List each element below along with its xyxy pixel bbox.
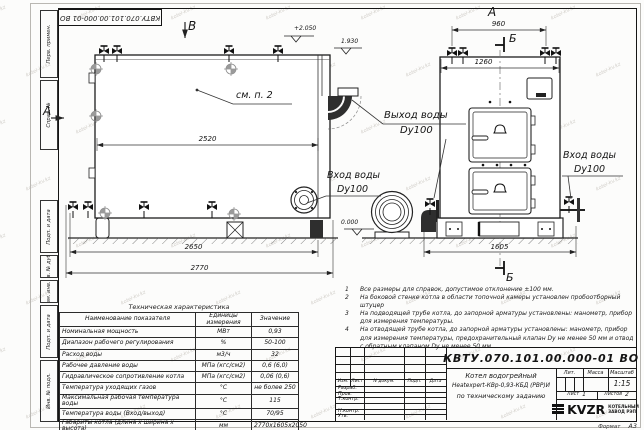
water-outlet-label: Выход воды <box>384 111 448 121</box>
spec-cell: 0,93 <box>252 327 299 338</box>
sheets-value: 2 <box>625 392 629 398</box>
logo-text: KVZR <box>567 402 605 417</box>
section-label-b-top: Б <box>509 33 517 44</box>
rev-header-docnum: N докум. <box>364 379 404 386</box>
spec-table: Наименование показателя Единицы измерени… <box>59 312 299 430</box>
see-note-label: см. п. 2 <box>236 91 273 101</box>
spec-row: Номинальная мощностьМВт0,93 <box>60 327 299 338</box>
scale-value: 1:15 <box>608 377 636 391</box>
spec-cell: 50-100 <box>252 338 299 349</box>
view-label-a-side: А <box>43 105 51 117</box>
dim-2520: 2520 <box>180 136 235 143</box>
spec-row: Рабочее давление водыМПа (кгс/см2)0,6 (6… <box>60 360 299 371</box>
spec-cell: МПа (кгс/см2) <box>196 372 252 383</box>
rev-header-data: Дата <box>425 379 446 386</box>
sheets-cell: Листов 2 <box>597 391 636 399</box>
spec-row: Диапазон рабочего регулирования%50-100 <box>60 338 299 349</box>
rev-header-izm: Изм. <box>336 379 350 386</box>
description-line-3: по техническому заданию <box>448 392 554 401</box>
spec-cell: Максимальная рабочая температура воды <box>60 394 196 408</box>
mass-label: Масса <box>583 369 608 377</box>
spec-header-row: Наименование показателя Единицы измерени… <box>60 313 299 327</box>
spec-cell: Рабочее давление воды <box>60 360 196 371</box>
spec-header-name: Наименование показателя <box>60 313 196 327</box>
spec-cell: МПа (кгс/см2) <box>196 360 252 371</box>
view-label-v: В <box>188 20 196 32</box>
sheet-value: 1 <box>582 392 586 398</box>
title-block: КВТУ.070.101.00.000-01 ВО Изм. Лист N до… <box>335 347 637 422</box>
sheet-cell: Лист 1 <box>556 391 597 399</box>
dim-1605: 1605 <box>472 244 527 251</box>
sheet-label: Лист <box>567 393 579 398</box>
dim-2650: 2650 <box>166 244 221 251</box>
sheets-label: Листов <box>604 393 622 398</box>
view-label-a-top: А <box>488 6 496 18</box>
spec-cell: 70/95 <box>252 408 299 419</box>
note-text: На подводящей трубе котла, до запорной а… <box>360 310 634 326</box>
water-inlet-left-dn: Dy100 <box>337 185 368 195</box>
spec-cell: Номинальная мощность <box>60 327 196 338</box>
rev-header-list: Лист <box>350 379 364 386</box>
format-label: Формат А3 <box>575 422 637 430</box>
format-value: А3 <box>628 422 637 430</box>
blower <box>372 192 440 239</box>
spec-row: Максимальная рабочая температура воды°С1… <box>60 394 299 408</box>
spec-cell: Температура воды (Вход/выход) <box>60 408 196 419</box>
section-label-b-bottom: Б <box>506 272 514 283</box>
logo-bars-icon <box>552 403 564 415</box>
note-number: 2 <box>345 294 353 310</box>
spec-cell: 32 <box>252 349 299 360</box>
doc-number: КВТУ.070.101.00.000-01 ВО <box>448 350 634 366</box>
spec-row: Температура уходящих газов°Сне более 250 <box>60 383 299 394</box>
elevation-mid: 1.930 <box>341 39 358 45</box>
water-inlet-right-dn: Dy100 <box>574 165 605 175</box>
elevation-ground: 0.000 <box>341 220 358 226</box>
spec-header-units: Единицы измерения <box>196 313 252 327</box>
scale-label: Масштаб <box>608 369 636 377</box>
spec-cell: 0,06 (0,6) <box>252 372 299 383</box>
valve-icon <box>68 202 78 218</box>
spec-cell: % <box>196 338 252 349</box>
valve-icon <box>83 202 93 218</box>
logo-subtitle-line: ЗАВОД РЭП <box>608 409 639 414</box>
spec-cell: Диапазон рабочего регулирования <box>60 338 196 349</box>
format-word: Формат <box>598 424 620 430</box>
kvzr-logo: KVZR КОТЕЛЬНЫЙ ЗАВОД РЭП <box>556 399 635 419</box>
description-line-2: Heatexpert-КВр-0,93-КБД (РВР)И <box>448 382 554 391</box>
dim-960: 960 <box>471 21 526 28</box>
sign-row-utv: Утв. <box>338 415 348 420</box>
note-item: 2На боковой стенке котла в области топоч… <box>345 294 634 310</box>
dim-1260: 1260 <box>456 59 511 66</box>
spec-cell: не более 250 <box>252 383 299 394</box>
spec-table-title: Техническая характеристика <box>59 303 299 311</box>
spec-cell: 0,6 (6,0) <box>252 360 299 371</box>
spec-header-value: Значение <box>252 313 299 327</box>
lit-label: Лит. <box>556 369 583 377</box>
note-text: Все размеры для справок, допустимое откл… <box>360 286 554 294</box>
note-text: На боковой стенке котла в области топочн… <box>360 294 634 310</box>
spec-cell: °С <box>196 383 252 394</box>
spec-cell: мм <box>196 419 252 430</box>
spec-cell: 115 <box>252 394 299 408</box>
elevation-top: +2.050 <box>294 26 316 32</box>
note-number: 1 <box>345 286 353 294</box>
dim-2770: 2770 <box>172 265 227 272</box>
water-outlet-dn: Dy100 <box>400 126 433 136</box>
spec-cell: °С <box>196 394 252 408</box>
spec-cell: Температура уходящих газов <box>60 383 196 394</box>
rev-header-podp: Подп. <box>404 379 425 386</box>
logo-subtitle: КОТЕЛЬНЫЙ ЗАВОД РЭП <box>608 404 639 414</box>
water-inlet-left-label: Вход воды <box>327 171 380 181</box>
spec-row: Габариты котла (длина х ширина х высота)… <box>60 419 299 430</box>
spec-cell: м3/ч <box>196 349 252 360</box>
drawing-sheet: kotel-kv.kzkotel-kv.kzkotel-kv.kzkotel-k… <box>0 0 644 430</box>
spec-cell: Габариты котла (длина х ширина х высота) <box>60 419 196 430</box>
water-inlet-right-label: Вход воды <box>563 151 616 161</box>
spec-cell: °С <box>196 408 252 419</box>
note-number: 3 <box>345 310 353 326</box>
description-line-1: Котел водогрейный <box>448 372 554 381</box>
notes-list: 1Все размеры для справок, допустимое отк… <box>345 286 634 351</box>
spec-cell: 2770х1605х2050 <box>252 419 299 430</box>
sign-row-tkontr: Т.контр. <box>338 398 359 403</box>
spec-row: Температура воды (Вход/выход)°С70/95 <box>60 408 299 419</box>
note-item: 1Все размеры для справок, допустимое отк… <box>345 286 634 294</box>
spec-cell: Расход воды <box>60 349 196 360</box>
spec-row: Гидравлическое сопротивление котлаМПа (к… <box>60 372 299 383</box>
note-item: 3На подводящей трубе котла, до запорной … <box>345 310 634 326</box>
spec-cell: Гидравлическое сопротивление котла <box>60 372 196 383</box>
spec-cell: МВт <box>196 327 252 338</box>
spec-row: Расход водым3/ч32 <box>60 349 299 360</box>
